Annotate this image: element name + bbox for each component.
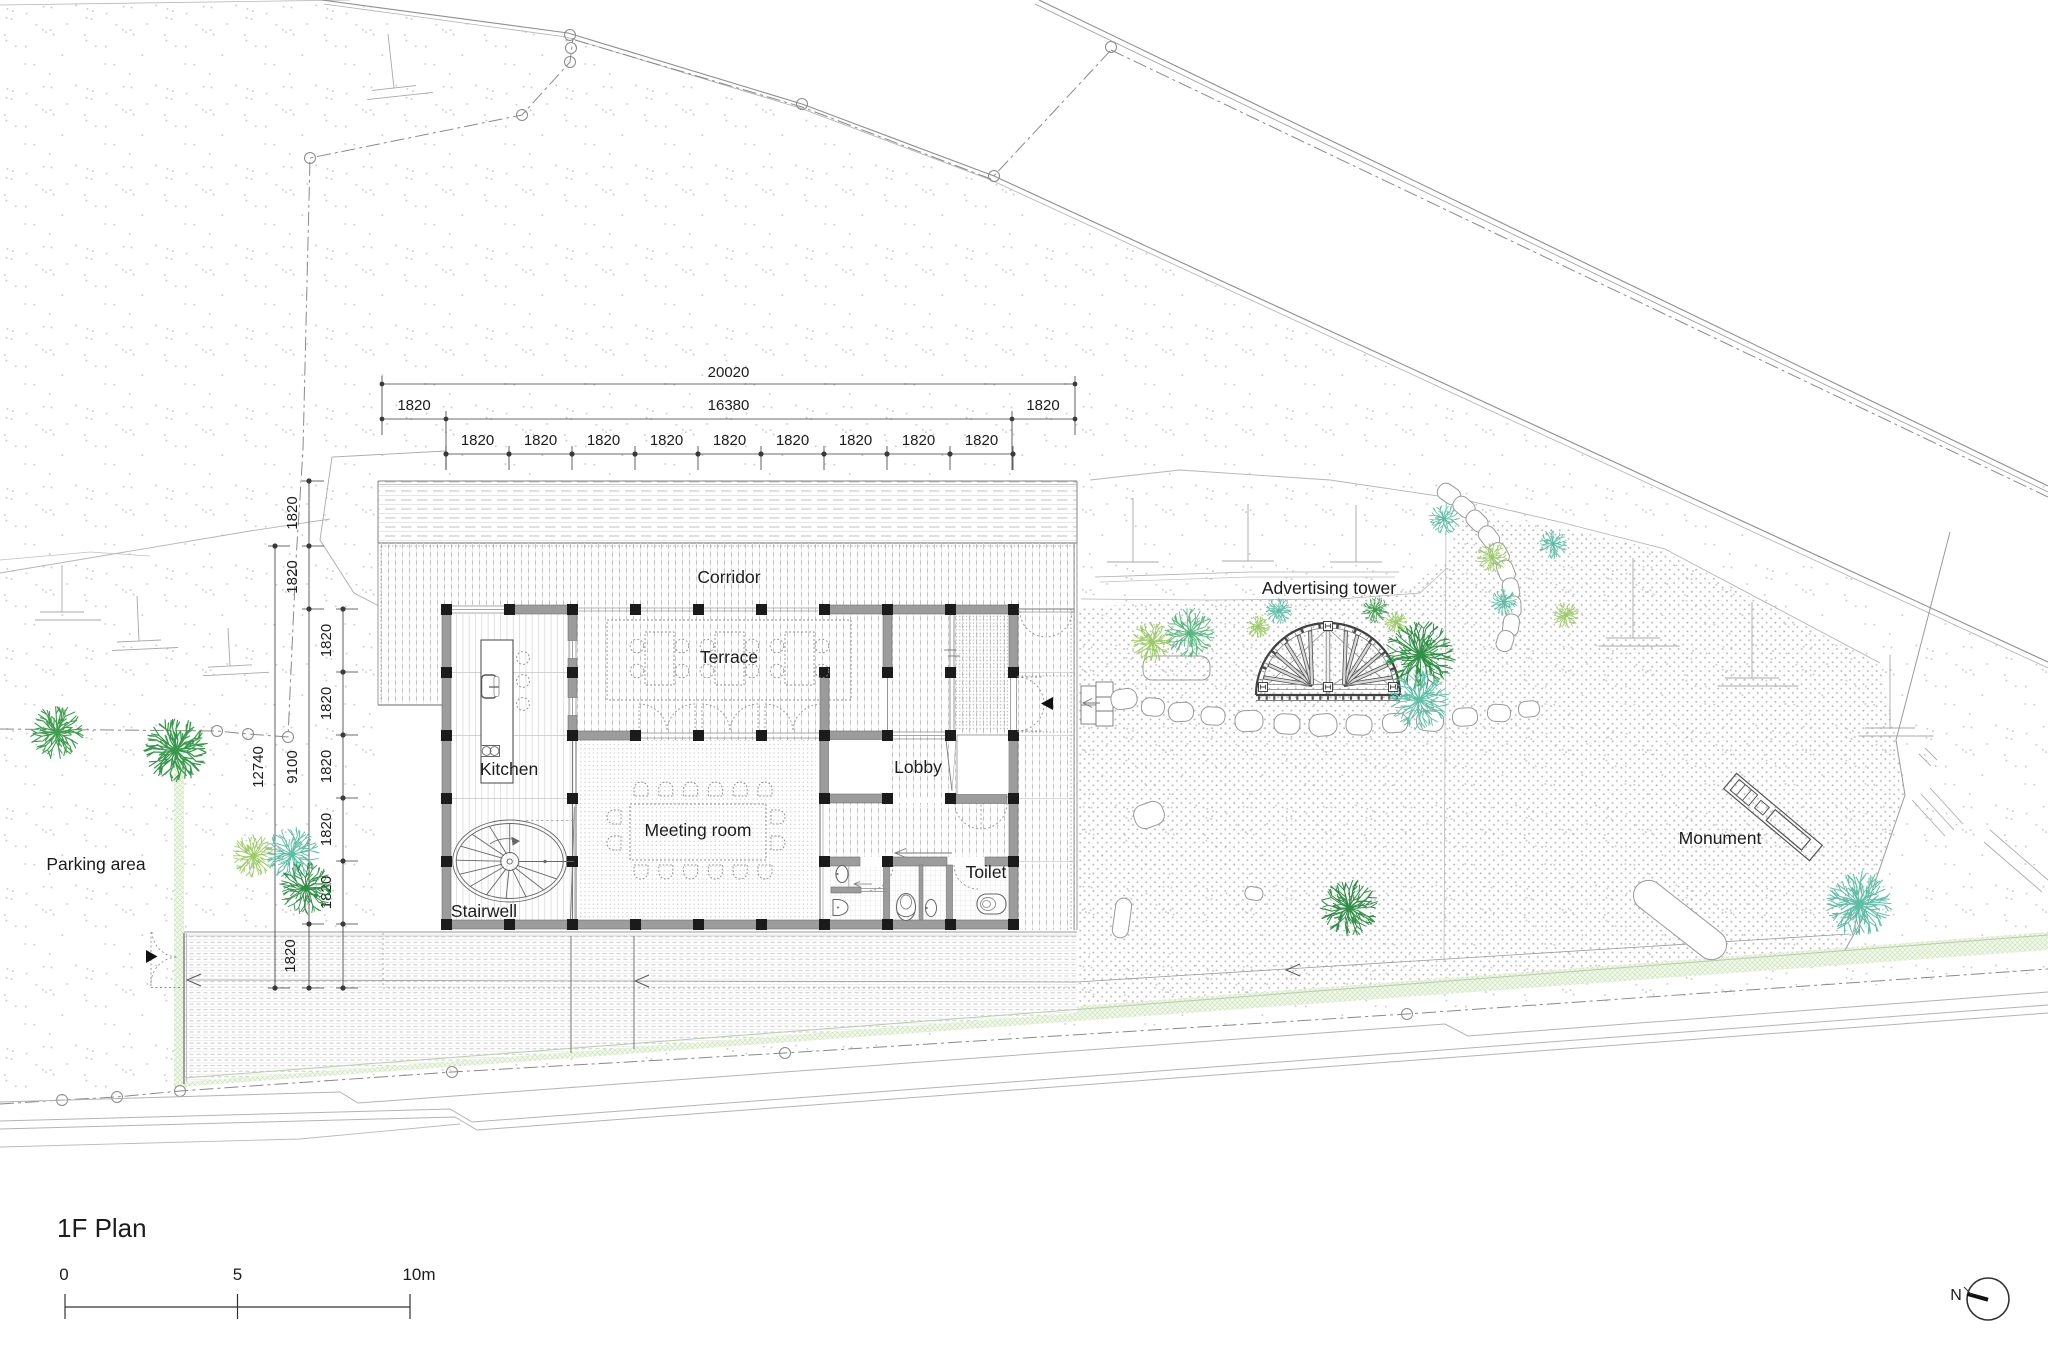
svg-text:Corridor: Corridor (697, 567, 760, 587)
svg-text:5: 5 (233, 1265, 242, 1284)
svg-text:1820: 1820 (839, 432, 872, 449)
svg-text:Terrace: Terrace (700, 647, 758, 667)
svg-text:1820: 1820 (318, 687, 335, 720)
svg-text:1820: 1820 (282, 939, 299, 972)
svg-text:1820: 1820 (461, 432, 494, 449)
svg-text:1820: 1820 (284, 496, 301, 529)
svg-text:1820: 1820 (397, 397, 430, 414)
svg-text:Parking area: Parking area (46, 854, 145, 874)
svg-text:1820: 1820 (318, 876, 335, 909)
svg-text:1820: 1820 (284, 560, 301, 593)
svg-text:1820: 1820 (318, 624, 335, 657)
svg-text:0: 0 (59, 1265, 68, 1284)
svg-text:12740: 12740 (250, 746, 267, 788)
svg-text:1820: 1820 (318, 750, 335, 783)
svg-text:1820: 1820 (965, 432, 998, 449)
svg-text:1820: 1820 (318, 813, 335, 846)
svg-text:1820: 1820 (1026, 397, 1059, 414)
svg-text:N: N (1950, 1287, 1962, 1304)
svg-text:10m: 10m (402, 1265, 435, 1284)
svg-text:1820: 1820 (524, 432, 557, 449)
svg-text:Lobby: Lobby (894, 757, 942, 777)
svg-text:Monument: Monument (1679, 828, 1762, 848)
svg-text:16380: 16380 (708, 397, 750, 414)
svg-text:1820: 1820 (902, 432, 935, 449)
svg-text:Advertising tower: Advertising tower (1262, 578, 1396, 598)
svg-text:Kitchen: Kitchen (480, 759, 538, 779)
svg-text:20020: 20020 (708, 364, 750, 381)
svg-text:9100: 9100 (284, 750, 301, 783)
svg-text:1820: 1820 (776, 432, 809, 449)
svg-text:Meeting room: Meeting room (645, 820, 752, 840)
svg-text:Toilet: Toilet (966, 862, 1007, 882)
svg-text:1F Plan: 1F Plan (57, 1213, 147, 1243)
svg-text:1820: 1820 (713, 432, 746, 449)
svg-text:Stairwell: Stairwell (451, 901, 517, 921)
svg-text:1820: 1820 (650, 432, 683, 449)
svg-text:1820: 1820 (587, 432, 620, 449)
